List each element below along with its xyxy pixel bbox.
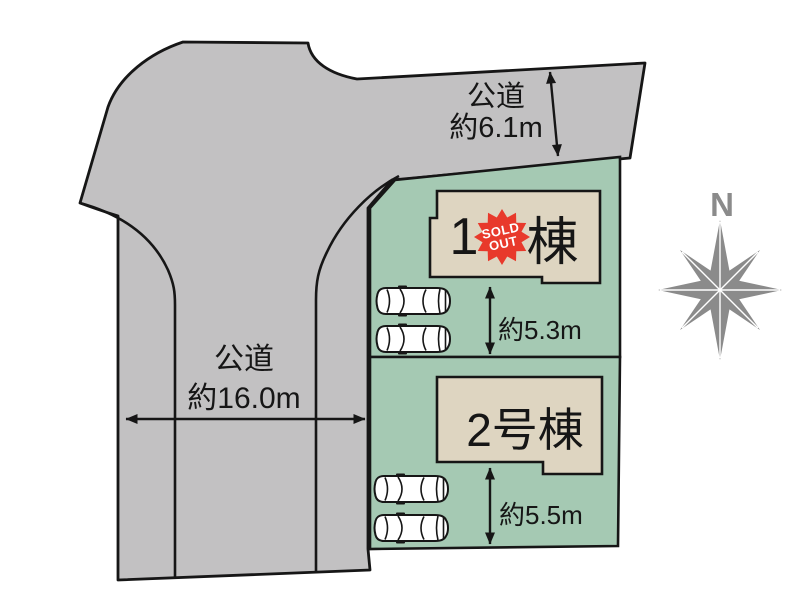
road-top-name: 公道 bbox=[416, 82, 576, 113]
car-icon bbox=[375, 514, 449, 543]
car-icon bbox=[377, 325, 451, 354]
compass-rose bbox=[656, 218, 784, 366]
road-top-width: 約6.1m bbox=[416, 113, 576, 144]
building-1-suffix: 棟 bbox=[526, 200, 578, 275]
compass-north-label: N bbox=[702, 186, 742, 224]
sold-out-badge: SOLD OUT bbox=[474, 209, 530, 265]
car-icon bbox=[377, 287, 451, 316]
car-icon bbox=[375, 475, 449, 504]
road-left-label: 公道 約16.0m bbox=[160, 340, 328, 418]
road-left-width: 約16.0m bbox=[160, 379, 328, 418]
building-1-label: 1 SOLD OUT 棟 bbox=[423, 206, 605, 268]
road-top-label: 公道 約6.1m bbox=[416, 82, 576, 144]
plot-2-depth-label: 約5.5m bbox=[499, 495, 583, 532]
road-left-name: 公道 bbox=[160, 340, 328, 379]
plot-1-depth-label: 約5.3m bbox=[498, 310, 582, 347]
site-plan-map: N 公道 約6.1m 公道 約16.0m 1 SOLD OUT 棟 2号棟 約5… bbox=[0, 0, 800, 602]
building-2-label: 2号棟 bbox=[435, 394, 615, 460]
